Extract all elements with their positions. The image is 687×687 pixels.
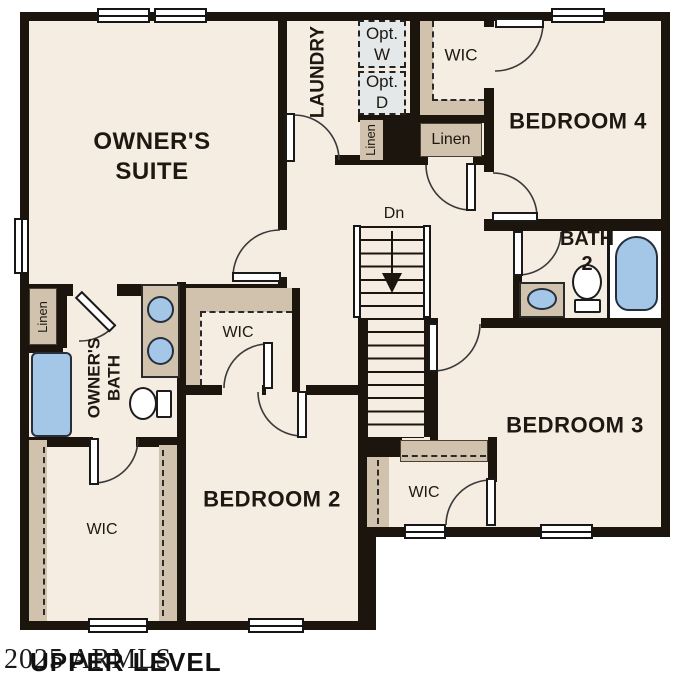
label-owners-bath: OWNER'S BATH: [85, 331, 126, 425]
window-owners-suite-left: [14, 218, 29, 274]
wall-bed2-north-c: [306, 385, 367, 395]
wic-owner-rod-line-east: [162, 450, 164, 616]
label-wic-hall: WIC: [222, 323, 253, 343]
label-laundry: LAUNDRY: [308, 26, 331, 118]
label-opt-w: Opt. W: [365, 23, 399, 66]
wic-bed4-shelf-south: [420, 100, 484, 115]
wic-bed3-shelf: [400, 440, 488, 462]
label-wic-owner: WIC: [86, 520, 117, 540]
wall-bath2-west-stub: [513, 231, 522, 237]
wall-wicb3-east: [488, 437, 497, 482]
page-title: UPPER LEVEL: [30, 647, 222, 678]
label-linen-hall: Linen: [431, 130, 470, 150]
shower-owner: [31, 352, 72, 437]
label-owners-suite: OWNER'S SUITE: [67, 127, 237, 187]
label-bedroom3: BEDROOM 3: [506, 411, 644, 439]
floor-plan: OWNER'S SUITE LAUNDRY Opt. W Opt. D Line…: [0, 0, 687, 687]
window-bedroom3-bottom: [540, 524, 593, 539]
label-linen-laundry: Linen: [363, 124, 379, 156]
label-opt-d: Opt. D: [365, 71, 399, 114]
wall-stairs-east: [424, 318, 434, 437]
wall-bed4-west: [484, 88, 494, 172]
toilet-owner-tank: [156, 390, 172, 418]
wic-bed3-shelf-line: [402, 455, 486, 457]
floor-lower-left: [20, 537, 376, 630]
wic-bed4-rod-line: [432, 21, 434, 100]
wall-laundry-linen-block: [383, 120, 410, 160]
window-wic-bed3-bottom: [404, 524, 446, 539]
stairs-down-arrow-head: [382, 273, 402, 293]
wall-exterior-step: [367, 527, 376, 630]
label-stairs-dn: Dn: [384, 204, 404, 224]
wall-understair-block: [358, 437, 402, 457]
stairs-rail-right: [423, 225, 431, 318]
label-wic-bed3: WIC: [408, 483, 439, 503]
wic-bed3-rod-line: [377, 460, 379, 524]
wall-exterior-right: [661, 12, 670, 537]
toilet-bath2-tank: [574, 299, 601, 313]
wic-hall-shelf-line-v: [200, 311, 202, 385]
stairs-down-arrow-shaft: [391, 231, 393, 275]
wall-laundry-east: [410, 12, 420, 163]
wic-bed4-shelf-line: [432, 99, 484, 101]
wall-linen-owner-east: [57, 288, 67, 348]
sink-bath2: [527, 288, 557, 310]
stairs-lower-treads: [368, 318, 424, 438]
bathtub-bath2: [615, 236, 658, 311]
wic-hall-shelf-north: [186, 288, 292, 312]
window-owners-suite-top-2: [154, 8, 207, 23]
wall-exterior-left: [20, 12, 29, 630]
wic-hall-shelf-west: [186, 288, 200, 385]
label-wic-bed4: WIC: [444, 44, 477, 65]
wall-linen4-north: [410, 115, 492, 123]
wall-wicmid-east: [292, 288, 300, 392]
window-wic-owner-bottom: [88, 618, 148, 633]
wall-bed2-north-b: [262, 385, 266, 395]
label-bedroom4: BEDROOM 4: [509, 107, 647, 135]
wic-owner-rod-line-west: [43, 447, 45, 615]
wall-exterior-bottom-left: [20, 621, 376, 630]
label-bedroom2: BEDROOM 2: [203, 485, 341, 513]
label-bath2: BATH 2: [555, 227, 619, 277]
wall-suite-east: [278, 12, 287, 230]
sink-owner-1: [147, 296, 174, 323]
sink-owner-2: [147, 337, 174, 365]
wall-bed4-west-stub: [484, 21, 494, 27]
wall-bath2-south: [481, 318, 670, 328]
window-owners-suite-top-1: [97, 8, 150, 23]
window-bedroom4-top: [551, 8, 605, 23]
toilet-owner-bowl: [129, 387, 157, 420]
wic-hall-shelf-line-h: [200, 311, 292, 313]
window-bedroom2-bottom: [248, 618, 304, 633]
label-linen-owner: Linen: [35, 301, 51, 333]
stairs-rail-left: [353, 225, 361, 318]
